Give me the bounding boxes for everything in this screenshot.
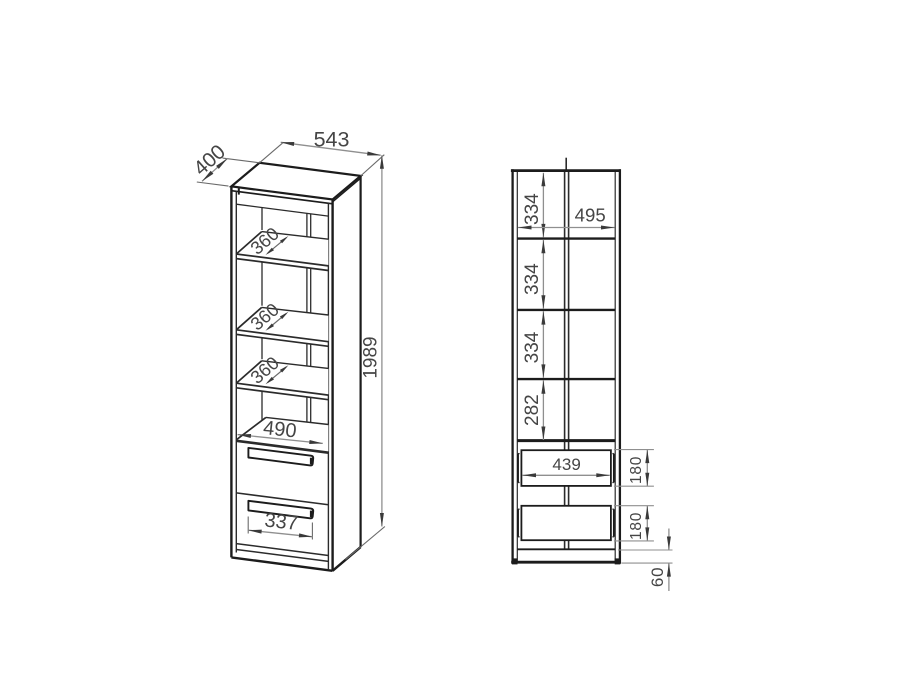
svg-text:180: 180 (628, 512, 645, 540)
svg-text:334: 334 (522, 263, 543, 295)
svg-text:1989: 1989 (360, 336, 381, 378)
svg-text:400: 400 (189, 140, 230, 180)
svg-text:543: 543 (314, 128, 350, 152)
svg-text:180: 180 (628, 456, 645, 484)
svg-text:334: 334 (522, 331, 543, 363)
svg-text:495: 495 (575, 205, 606, 226)
svg-text:60: 60 (648, 567, 667, 588)
svg-text:337: 337 (263, 510, 298, 535)
svg-text:282: 282 (522, 394, 543, 426)
svg-text:439: 439 (552, 455, 580, 474)
svg-text:490: 490 (262, 417, 297, 442)
svg-text:334: 334 (522, 193, 543, 225)
